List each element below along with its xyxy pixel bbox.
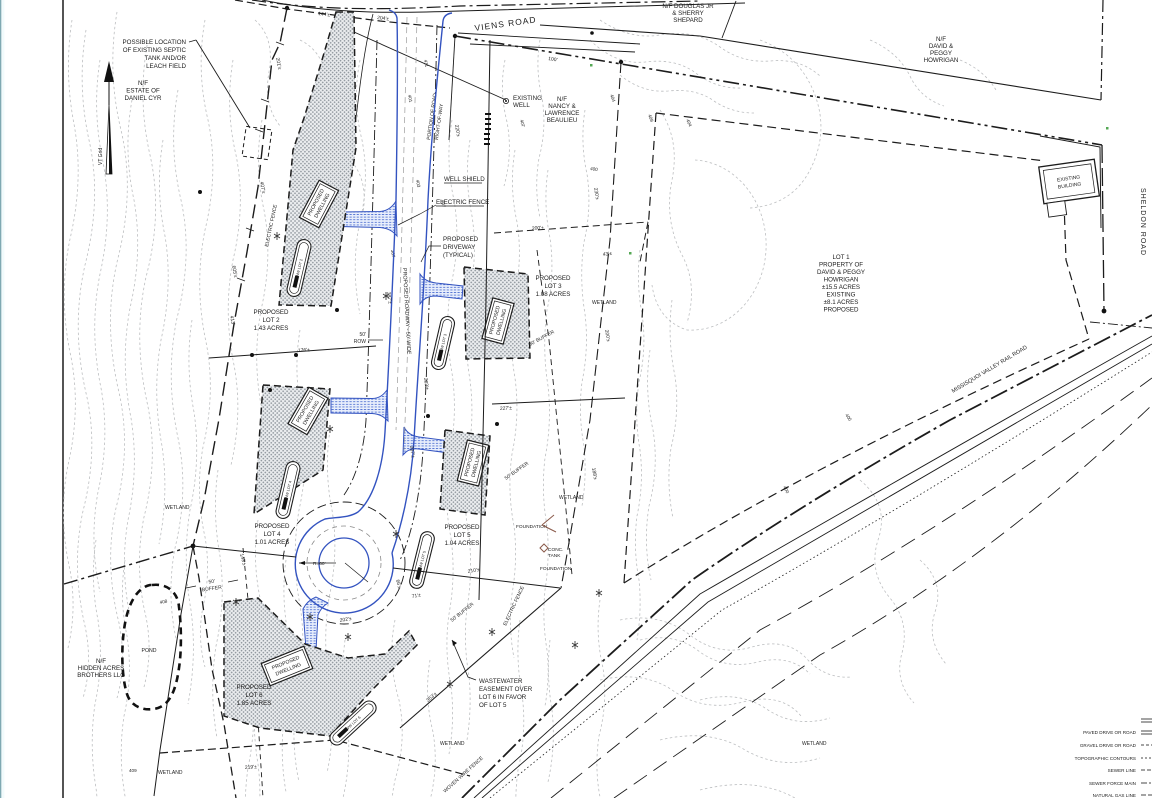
svg-text:R=60': R=60': [313, 561, 326, 567]
svg-text:1.43 ACRES: 1.43 ACRES: [254, 325, 289, 332]
svg-text:EXISTING: EXISTING: [827, 292, 856, 299]
svg-text:50': 50': [359, 332, 366, 338]
svg-text:1.01 ACRES: 1.01 ACRES: [255, 539, 290, 546]
svg-text:N/F DOUGLAS JR: N/F DOUGLAS JR: [662, 3, 714, 10]
svg-text:SHELDON ROAD: SHELDON ROAD: [1139, 188, 1146, 256]
svg-text:FOUNDATION: FOUNDATION: [540, 566, 572, 572]
svg-text:(TYPICAL): (TYPICAL): [443, 252, 473, 259]
svg-text:WASTEWATER: WASTEWATER: [479, 678, 523, 685]
svg-text:WELL SHIELD: WELL SHIELD: [444, 176, 485, 183]
svg-text:SEWER FORCE MAIN: SEWER FORCE MAIN: [1089, 781, 1136, 786]
svg-text:HOWRIGAN: HOWRIGAN: [924, 57, 959, 64]
svg-text:N/F: N/F: [557, 96, 567, 103]
svg-text:LAWRENCE: LAWRENCE: [545, 110, 580, 117]
svg-text:GRAVEL DRIVE OR ROAD: GRAVEL DRIVE OR ROAD: [1080, 743, 1137, 748]
svg-text:HOWRIGAN: HOWRIGAN: [824, 277, 859, 284]
svg-text:DAVID &: DAVID &: [929, 43, 954, 50]
svg-text:DAVID & PEGGY: DAVID & PEGGY: [817, 269, 865, 276]
svg-text:PROPOSED: PROPOSED: [823, 307, 859, 314]
svg-text:PEGGY: PEGGY: [930, 50, 952, 57]
svg-text:LOT 1: LOT 1: [832, 254, 850, 261]
svg-text:N/F: N/F: [936, 36, 946, 43]
svg-text:ROW: ROW: [354, 339, 367, 345]
svg-text:HIDDEN ACRES: HIDDEN ACRES: [78, 665, 124, 672]
svg-text:WETLAND: WETLAND: [559, 495, 584, 501]
svg-text:176'±: 176'±: [298, 347, 311, 354]
svg-text:POSSIBLE LOCATION: POSSIBLE LOCATION: [123, 39, 187, 46]
svg-text:1.85 ACRES: 1.85 ACRES: [237, 700, 272, 707]
svg-text:PROPOSED: PROPOSED: [253, 309, 289, 316]
svg-text:VT Grid: VT Grid: [98, 148, 104, 165]
svg-text:NATURAL GAS LINE: NATURAL GAS LINE: [1093, 793, 1136, 798]
svg-text:LEACH FIELD: LEACH FIELD: [146, 63, 186, 70]
svg-text:FOUNDATION: FOUNDATION: [516, 524, 548, 530]
svg-text:CONC.: CONC.: [548, 547, 563, 553]
svg-text:PROPOSED: PROPOSED: [444, 524, 480, 531]
svg-text:WETLAND: WETLAND: [165, 505, 190, 511]
svg-text:N/F: N/F: [138, 80, 148, 87]
svg-text:ESTATE OF: ESTATE OF: [126, 88, 160, 95]
svg-text:PAVED DRIVE OR ROAD: PAVED DRIVE OR ROAD: [1083, 730, 1137, 735]
svg-text:WETLAND: WETLAND: [592, 300, 617, 306]
svg-text:EXISTING: EXISTING: [513, 95, 542, 102]
svg-text:TANK: TANK: [548, 553, 561, 559]
svg-text:LOT 3: LOT 3: [544, 283, 562, 290]
svg-text:PROPERTY OF: PROPERTY OF: [819, 262, 863, 269]
svg-text:OF EXISTING SEPTIC: OF EXISTING SEPTIC: [123, 47, 187, 54]
svg-text:227'±: 227'±: [500, 405, 513, 412]
svg-text:BEAULIEU: BEAULIEU: [547, 117, 578, 124]
svg-text:PROPOSED: PROPOSED: [236, 684, 272, 691]
svg-text:BROTHERS LLC: BROTHERS LLC: [77, 672, 125, 679]
svg-text:POND: POND: [142, 648, 157, 654]
svg-text:219'±: 219'±: [245, 764, 258, 771]
svg-text:PROPOSED: PROPOSED: [254, 523, 290, 530]
svg-text:DANIEL CYR: DANIEL CYR: [125, 95, 162, 102]
svg-text:& SHERRY: & SHERRY: [672, 10, 704, 17]
svg-text:1.08 ACRES: 1.08 ACRES: [536, 291, 571, 298]
svg-text:50': 50': [208, 579, 215, 586]
svg-text:SHEPARD: SHEPARD: [673, 17, 703, 24]
svg-text:OF LOT 5: OF LOT 5: [479, 702, 507, 709]
svg-text:WETLAND: WETLAND: [802, 741, 827, 747]
svg-text:WETLAND: WETLAND: [158, 770, 183, 776]
svg-text:409: 409: [129, 768, 137, 773]
svg-text:LOT 5: LOT 5: [453, 532, 471, 539]
svg-text:NANCY &: NANCY &: [548, 103, 576, 110]
svg-text:TOPOGRAPHIC CONTOURS: TOPOGRAPHIC CONTOURS: [1075, 756, 1136, 761]
svg-text:LOT 6: LOT 6: [245, 692, 263, 699]
svg-text:LOT 2: LOT 2: [262, 317, 280, 324]
svg-text:TANK AND/OR: TANK AND/OR: [145, 55, 187, 62]
svg-text:WETLAND: WETLAND: [440, 741, 465, 747]
svg-text:ELECTRIC FENCE: ELECTRIC FENCE: [436, 199, 489, 206]
svg-text:WELL: WELL: [513, 102, 530, 109]
svg-text:PROPOSED: PROPOSED: [443, 236, 479, 243]
svg-text:±15.5 ACRES: ±15.5 ACRES: [822, 284, 860, 291]
svg-text:EASEMENT OVER: EASEMENT OVER: [479, 686, 533, 693]
svg-text:LOT 4: LOT 4: [263, 531, 281, 538]
svg-text:SEWER LINE: SEWER LINE: [1108, 768, 1136, 773]
svg-text:200'±: 200'±: [532, 225, 545, 232]
svg-text:DRIVEWAY: DRIVEWAY: [443, 244, 475, 251]
svg-text:N/F: N/F: [96, 658, 106, 665]
svg-text:1.04 ACRES: 1.04 ACRES: [445, 540, 480, 547]
svg-text:±8.1 ACRES: ±8.1 ACRES: [824, 299, 859, 306]
svg-text:LOT 6 IN FAVOR: LOT 6 IN FAVOR: [479, 694, 527, 701]
